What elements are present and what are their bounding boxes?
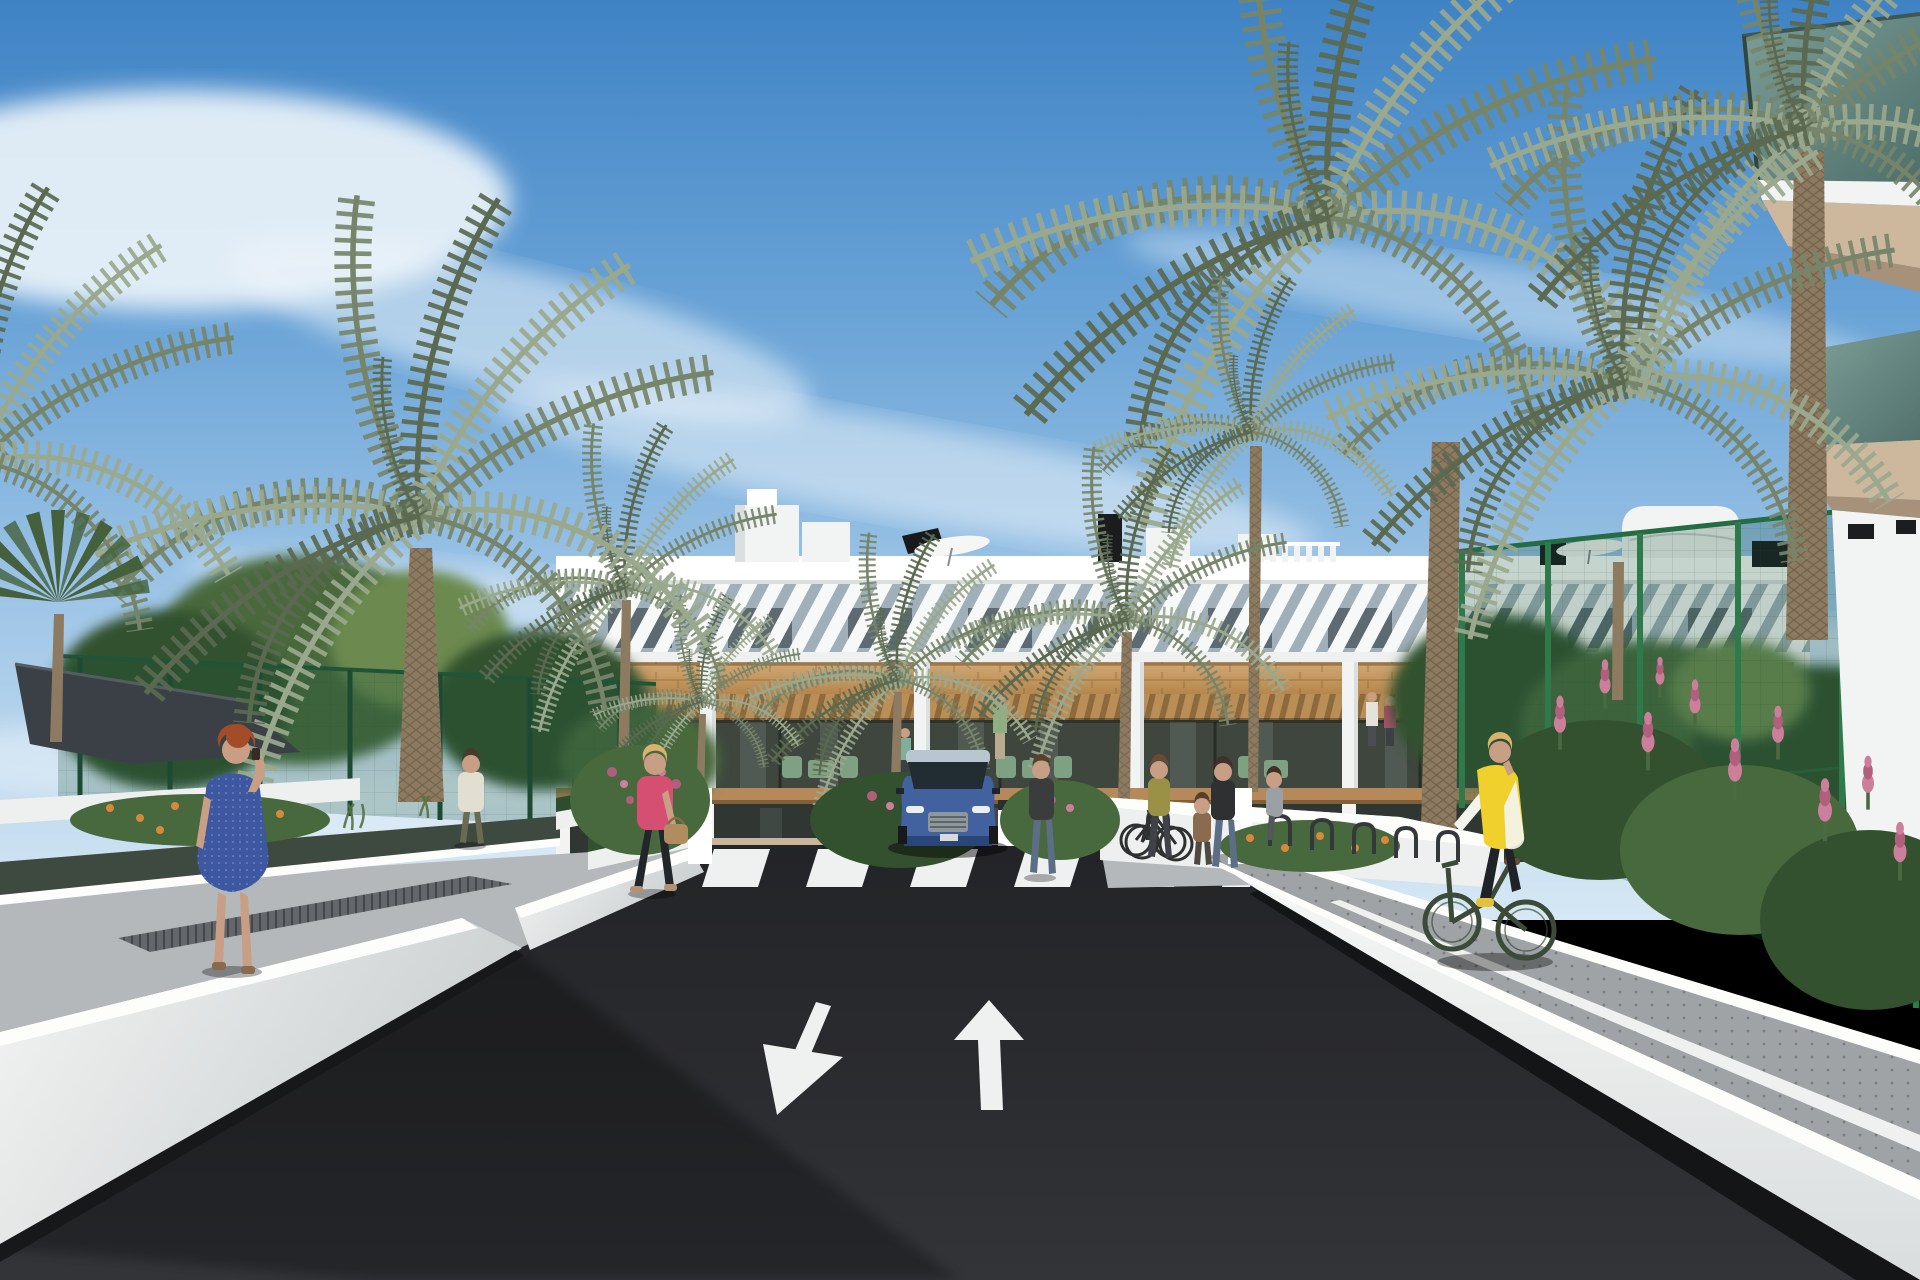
palm-trunk: [1612, 562, 1624, 700]
architectural-render: [0, 0, 1920, 1280]
render-viewport: [0, 0, 1920, 1280]
